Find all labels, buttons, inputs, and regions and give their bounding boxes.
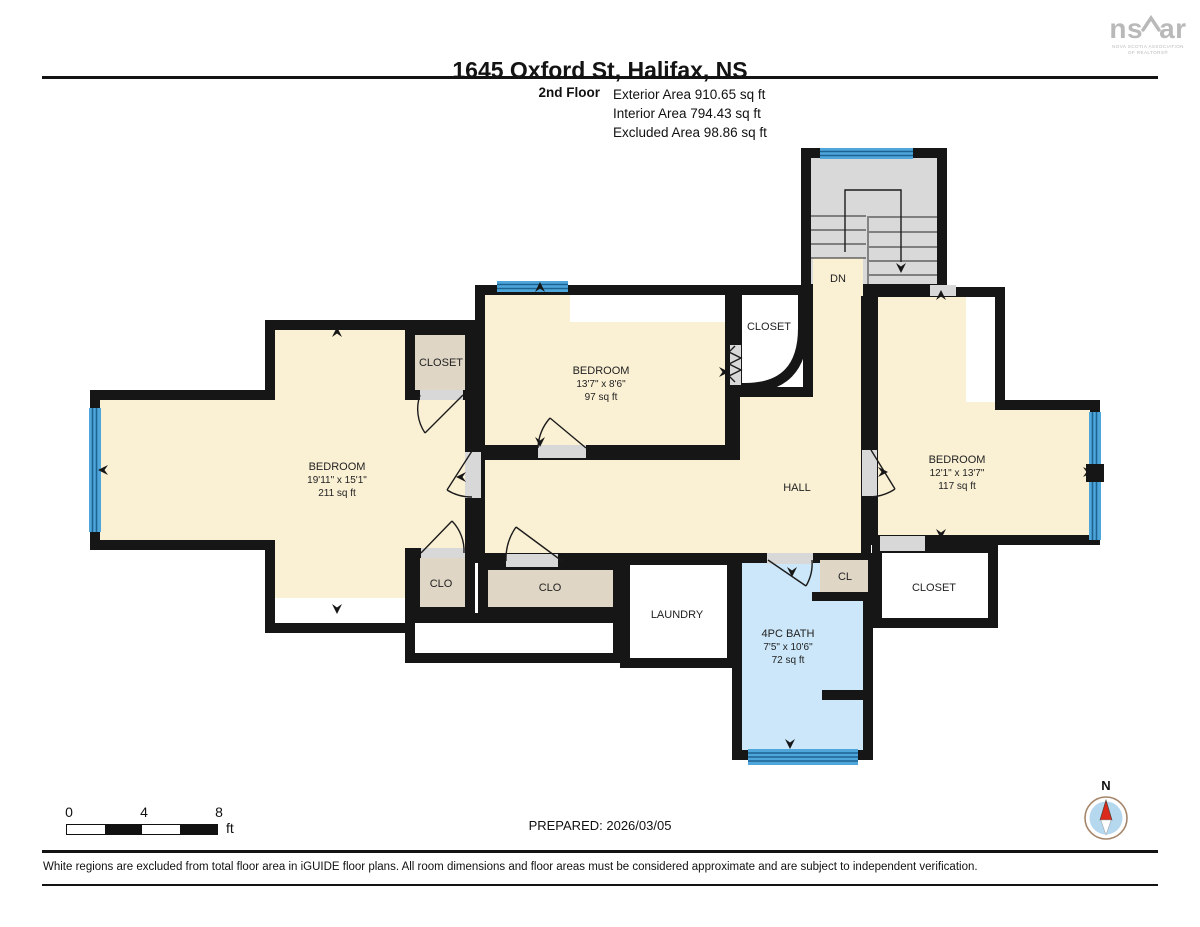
excluded-region xyxy=(275,598,405,623)
stairs-dn-label: DN xyxy=(830,273,846,285)
room-label: BEDROOM xyxy=(929,454,986,466)
room-area: 211 sq ft xyxy=(318,488,356,499)
room-label: CLOSET xyxy=(747,321,791,333)
floorplan-page: 1645 Oxford St, Halifax, NS ns ar NOVA S… xyxy=(0,0,1200,927)
window xyxy=(1089,412,1101,464)
room-area: 72 sq ft xyxy=(772,655,805,666)
room-dims: 19'11" x 15'1" xyxy=(307,475,367,486)
footer-divider-bottom xyxy=(42,884,1158,886)
window xyxy=(1089,482,1101,540)
room-label: CLO xyxy=(430,578,453,590)
room-bath xyxy=(737,558,872,755)
compass-north-label: N xyxy=(1101,778,1110,793)
room-label: BEDROOM xyxy=(573,365,630,377)
room-label: CLO xyxy=(539,582,562,594)
window xyxy=(497,281,568,292)
room-label: CLOSET xyxy=(419,357,463,369)
closet-by-stairs xyxy=(737,290,803,388)
room-dims: 12'1" x 13'7" xyxy=(930,468,985,479)
room-label: LAUNDRY xyxy=(651,609,704,621)
compass-icon: N xyxy=(1074,778,1138,844)
excluded-area-below-closets xyxy=(410,618,618,658)
footer-divider-top xyxy=(42,850,1158,853)
floorplan-drawing: BEDROOM 19'11" x 15'1" 211 sq ft BEDROOM… xyxy=(0,0,1200,927)
room-area: 97 sq ft xyxy=(585,392,618,403)
room-label: CLOSET xyxy=(912,582,956,594)
wall-stub xyxy=(812,592,872,601)
excluded-region xyxy=(570,295,725,322)
room-area: 117 sq ft xyxy=(938,481,976,492)
room-bedroom-right xyxy=(873,292,1095,540)
prepared-date: PREPARED: 2026/03/05 xyxy=(0,818,1200,833)
room-label: CL xyxy=(838,571,852,583)
room-label: 4PC BATH xyxy=(762,628,815,640)
zigzag-opening-icon xyxy=(729,345,741,385)
window xyxy=(748,749,858,765)
room-label: HALL xyxy=(783,482,811,494)
room-dims: 7'5" x 10'6" xyxy=(763,642,813,653)
room-dims: 13'7" x 8'6" xyxy=(576,379,626,390)
window xyxy=(820,148,913,159)
disclaimer-text: White regions are excluded from total fl… xyxy=(43,861,978,873)
room-label: BEDROOM xyxy=(309,461,366,473)
wall-stub xyxy=(822,690,868,700)
excluded-region xyxy=(966,297,995,402)
